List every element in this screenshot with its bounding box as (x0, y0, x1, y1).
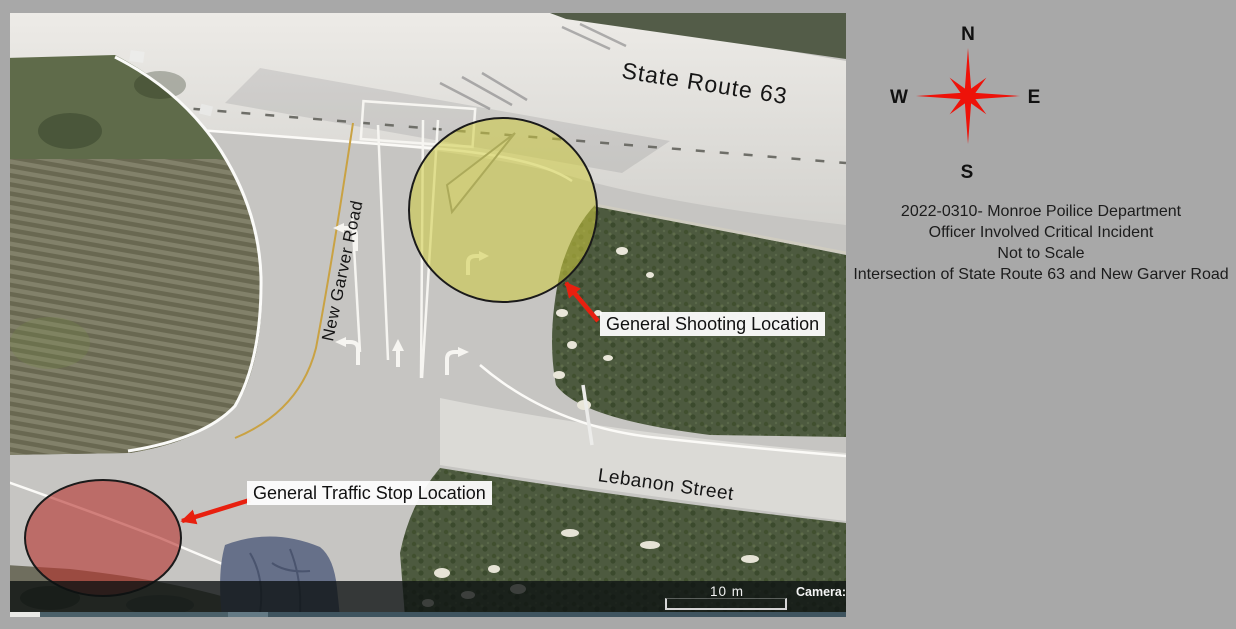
timeline-handle[interactable] (228, 612, 268, 617)
compass-rose-icon: N E S W (880, 16, 1056, 192)
compass-east-label: E (1028, 87, 1041, 108)
traffic-stop-ellipse (25, 480, 181, 596)
case-description: 2022-0310- Monroe Poilice Department Off… (846, 201, 1236, 285)
timeline-segment (40, 612, 228, 617)
aerial-map[interactable]: State Route 63 New Garver Road Lebanon S… (10, 13, 846, 617)
timeline-segment (268, 612, 846, 617)
case-number-line: 2022-0310- Monroe Poilice Department (846, 201, 1236, 222)
incident-type-line: Officer Involved Critical Incident (846, 222, 1236, 243)
compass-north-label: N (961, 24, 975, 45)
shooting-location-label: General Shooting Location (600, 312, 825, 336)
compass-south-label: S (961, 162, 974, 183)
shooting-location-circle (409, 118, 597, 302)
utility-pad (129, 50, 144, 63)
traffic-stop-location-label: General Traffic Stop Location (247, 481, 492, 505)
camera-label: Camera: (796, 585, 846, 599)
scale-bar (665, 598, 787, 610)
timeline-strip[interactable] (10, 612, 846, 617)
intersection-line: Intersection of State Route 63 and New G… (846, 264, 1236, 285)
timeline-segment (10, 612, 40, 617)
scale-note-line: Not to Scale (846, 243, 1236, 264)
info-panel: N E S W 2022-0310- Monroe Poilice Depart… (846, 0, 1236, 629)
scale-bar-label: 10 m (710, 584, 744, 599)
compass-star (916, 48, 1020, 144)
compass-west-label: W (890, 87, 908, 108)
incident-diagram-page: { "map": { "street_labels": [ { "text": … (0, 0, 1236, 629)
